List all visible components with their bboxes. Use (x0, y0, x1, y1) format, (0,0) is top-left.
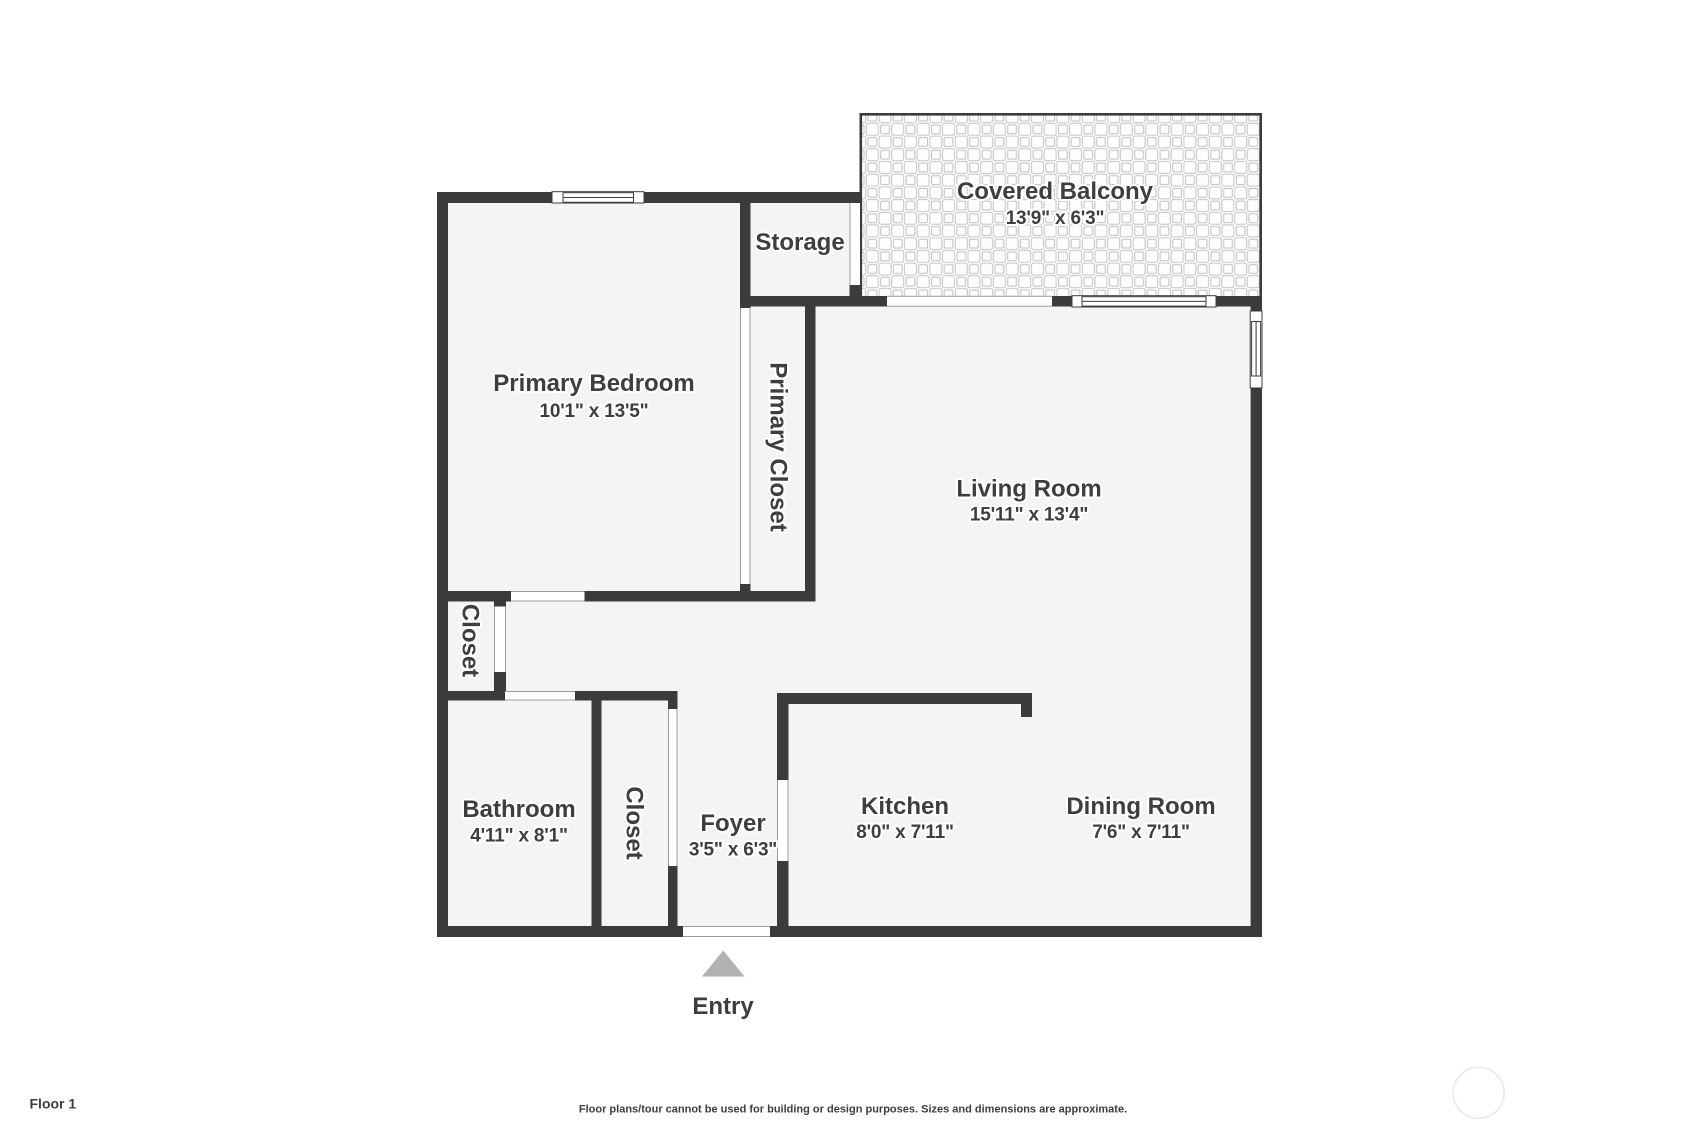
svg-text:3'5" x 6'3": 3'5" x 6'3" (689, 840, 777, 861)
svg-text:Primary Closet: Primary Closet (765, 362, 792, 531)
svg-text:Dining Room: Dining Room (1066, 793, 1215, 820)
svg-text:15'11" x 13'4": 15'11" x 13'4" (970, 505, 1088, 526)
svg-text:Bathroom: Bathroom (462, 796, 575, 823)
svg-text:Covered Balcony: Covered Balcony (957, 178, 1154, 205)
svg-text:7'6" x 7'11": 7'6" x 7'11" (1092, 822, 1190, 843)
svg-text:Living Room: Living Room (956, 476, 1101, 503)
svg-text:Primary Bedroom: Primary Bedroom (493, 370, 694, 397)
svg-text:Entry: Entry (692, 993, 754, 1020)
svg-text:13'9" x 6'3": 13'9" x 6'3" (1006, 208, 1105, 229)
svg-text:10'1" x 13'5": 10'1" x 13'5" (540, 401, 649, 422)
svg-text:8'0" x 7'11": 8'0" x 7'11" (856, 822, 954, 843)
svg-text:Floor plans/tour cannot be use: Floor plans/tour cannot be used for buil… (579, 1104, 1127, 1116)
svg-text:Foyer: Foyer (700, 810, 765, 837)
svg-text:4'11" x 8'1": 4'11" x 8'1" (470, 826, 568, 847)
svg-text:Storage: Storage (755, 229, 844, 256)
svg-text:Closet: Closet (457, 604, 484, 677)
svg-text:Kitchen: Kitchen (861, 793, 949, 820)
svg-text:Closet: Closet (621, 786, 648, 859)
svg-text:Floor 1: Floor 1 (30, 1096, 77, 1112)
